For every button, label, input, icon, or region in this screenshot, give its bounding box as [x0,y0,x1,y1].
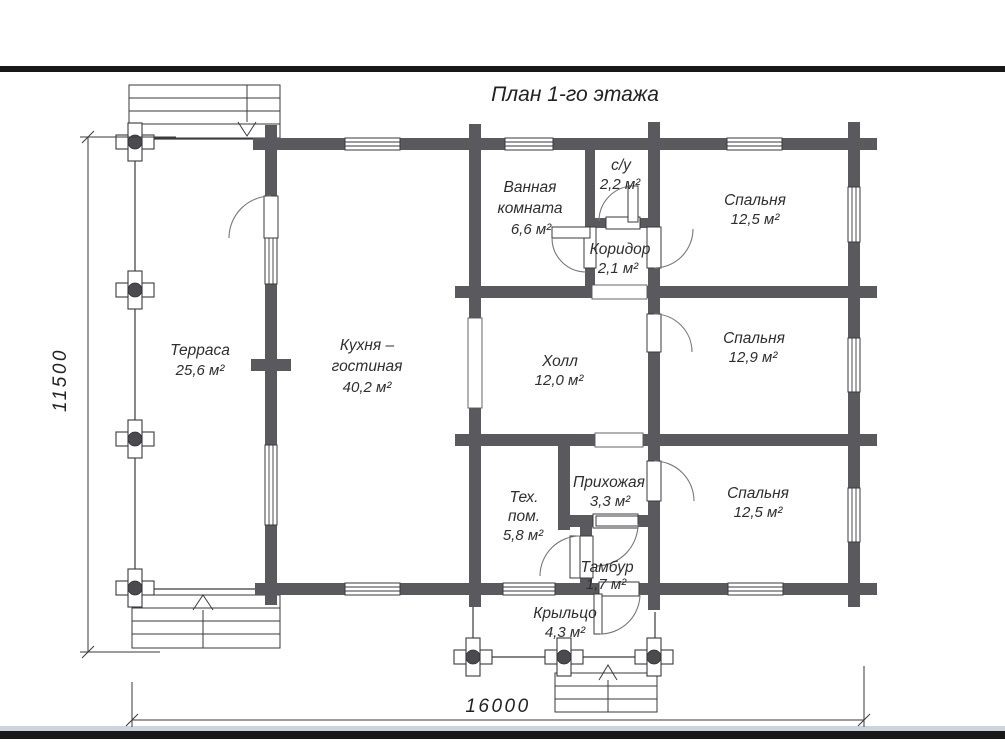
svg-text:Коридор: Коридор [590,241,651,258]
top-page-rule [0,66,1005,72]
wall-mid-upper [455,286,877,298]
wall-center-bedrooms [648,122,660,610]
svg-text:Тех.: Тех. [510,489,539,506]
column-porch-2 [545,638,583,676]
floor-plan-page: План 1-го этажа [0,0,1005,754]
dimension-left: 11500 [50,131,176,658]
wall-entry-left [558,441,570,530]
svg-text:12,9 м²: 12,9 м² [729,349,779,366]
room-label-hall: Холл 12,0 м² [535,353,585,389]
svg-text:40,2 м²: 40,2 м² [343,379,393,396]
column-porch-3 [635,638,673,676]
window-bedroom-top-right [848,187,860,242]
room-label-tech-room: Тех. пом. 5,8 м² [503,489,544,544]
svg-text:Спальня: Спальня [723,330,785,347]
window-kitchen-top [345,138,400,150]
svg-text:пом.: пом. [508,508,540,525]
svg-text:Прихожая: Прихожая [573,474,645,491]
room-label-kitchen-living: Кухня – гостиная 40,2 м² [332,337,403,396]
room-label-porch: Крыльцо 4,3 м² [533,605,597,641]
svg-text:4,3 м²: 4,3 м² [545,624,586,641]
wall-left-log-cross [251,359,291,371]
passage-corridor-hall [592,285,647,299]
svg-text:6,6 м²: 6,6 м² [511,221,552,238]
bottom-page-rule [0,731,1005,739]
column-terrace-2 [116,271,154,309]
window-bedroom-bottom-right [848,488,860,542]
room-label-entry-hall: Прихожая 3,3 м² [573,474,645,510]
svg-text:12,5 м²: 12,5 м² [734,504,784,521]
bottom-light-rule [0,726,1005,731]
svg-text:25,6 м²: 25,6 м² [175,362,226,379]
window-bathroom-top [505,138,553,150]
dimension-height-label: 11500 [50,348,71,412]
room-label-tambour: Тамбур 1,7 м² [580,559,634,593]
window-kitchen-left [265,238,277,284]
svg-text:Холл: Холл [541,353,578,370]
window-kitchen-left-long [265,445,277,525]
window-bedroom-middle-right [848,338,860,392]
window-bedroom-top [727,138,782,150]
passage-kitchen-hall [468,318,482,408]
svg-text:2,1 м²: 2,1 м² [597,260,639,277]
door-bedroom-middle [647,314,692,352]
svg-text:2,2 м²: 2,2 м² [599,176,641,193]
window-bedroom-bottom [728,583,783,595]
wall-mid-lower [455,434,877,446]
svg-text:Тамбур: Тамбур [580,559,634,576]
svg-text:Спальня: Спальня [724,192,786,209]
dimension-width-label: 16000 [465,696,530,717]
passage-hall-entry [595,433,643,447]
door-kitchen-terrace [229,196,278,238]
floor-plan-drawing: План 1-го этажа [0,0,1005,754]
svg-text:комната: комната [497,200,562,217]
room-label-bedroom-middle: Спальня 12,9 м² [723,330,785,366]
svg-text:12,0 м²: 12,0 м² [535,372,585,389]
room-label-bedroom-top: Спальня 12,5 м² [724,192,786,228]
window-tech-bottom [503,583,555,595]
room-label-wc: с/у 2,2 м² [599,157,641,193]
terrace-stairs-top [129,85,280,138]
svg-text:12,5 м²: 12,5 м² [731,211,781,228]
svg-text:Ванная: Ванная [504,179,557,196]
room-label-corridor: Коридор 2,1 м² [590,241,651,277]
door-bedroom-top [647,227,693,268]
page-title: План 1-го этажа [491,83,659,106]
window-kitchen-bottom [345,583,400,595]
svg-text:1,7 м²: 1,7 м² [586,576,627,593]
terrace-stairs-bottom [132,595,280,648]
door-bedroom-bottom [647,461,694,501]
svg-text:3,3 м²: 3,3 м² [590,493,631,510]
svg-text:гостиная: гостиная [332,358,403,375]
svg-text:с/у: с/у [611,157,632,174]
svg-text:Спальня: Спальня [727,485,789,502]
room-label-bedroom-bottom: Спальня 12,5 м² [727,485,789,521]
svg-text:Крыльцо: Крыльцо [533,605,597,622]
svg-text:Кухня –: Кухня – [340,337,395,354]
room-label-terrace: Терраса 25,6 м² [170,342,230,379]
column-porch-1 [454,638,492,676]
column-terrace-3 [116,420,154,458]
svg-text:Терраса: Терраса [170,342,230,359]
svg-text:5,8 м²: 5,8 м² [503,527,544,544]
dimension-bottom: 16000 [126,666,870,727]
